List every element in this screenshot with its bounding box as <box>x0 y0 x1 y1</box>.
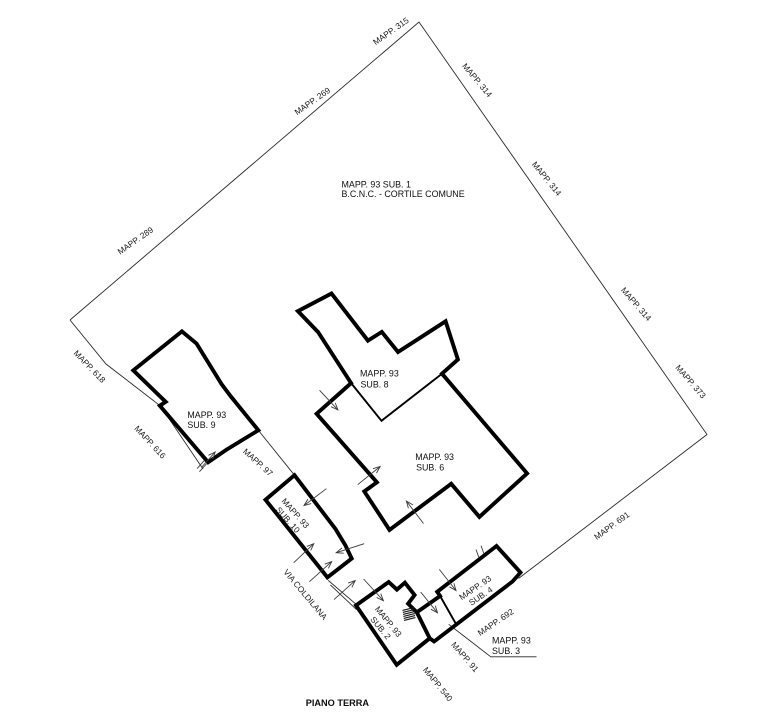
svg-text:SUB. 8: SUB. 8 <box>361 379 389 389</box>
svg-text:MAPP. 93: MAPP. 93 <box>415 452 454 462</box>
svg-text:MAPP. 93: MAPP. 93 <box>360 369 399 379</box>
svg-text:MAPP. 93 SUB. 1: MAPP. 93 SUB. 1 <box>342 179 411 189</box>
svg-text:PIANO TERRA: PIANO TERRA <box>306 698 370 708</box>
svg-text:SUB. 9: SUB. 9 <box>187 420 215 430</box>
svg-text:MAPP. 93: MAPP. 93 <box>492 636 531 646</box>
svg-text:B.C.N.C. - CORTILE COMUNE: B.C.N.C. - CORTILE COMUNE <box>342 189 465 199</box>
svg-text:SUB. 3: SUB. 3 <box>492 646 520 656</box>
svg-text:SUB. 6: SUB. 6 <box>416 462 444 472</box>
svg-text:MAPP. 93: MAPP. 93 <box>187 410 226 420</box>
